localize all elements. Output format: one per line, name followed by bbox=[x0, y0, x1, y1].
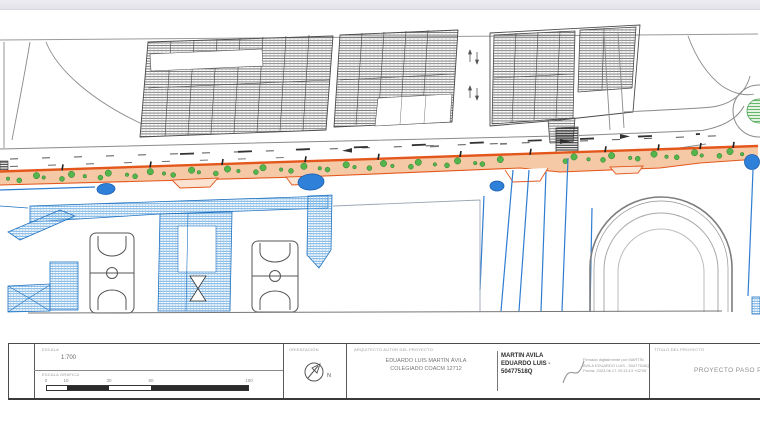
graphic-scale-bar bbox=[46, 385, 249, 391]
blue-building-complex bbox=[0, 195, 332, 312]
city-block-1 bbox=[140, 35, 333, 137]
scale-cell-divider bbox=[34, 370, 283, 371]
city-block-2 bbox=[334, 30, 458, 127]
street-arrow-icons bbox=[469, 50, 479, 100]
tick-100: 100 bbox=[245, 378, 253, 383]
tick-30: 30 bbox=[106, 378, 111, 383]
crossing-ramp bbox=[505, 168, 548, 182]
title-block-divider bbox=[346, 344, 347, 398]
scale-value: 1:700 bbox=[61, 355, 76, 361]
north-letter: N bbox=[327, 373, 331, 379]
city-block-3 bbox=[490, 25, 640, 143]
running-track bbox=[590, 197, 732, 312]
scale-label: ESCALA bbox=[42, 347, 59, 352]
existing-city-blocks bbox=[0, 25, 760, 157]
scale-bar-ticks: 0 10 30 50 100 bbox=[46, 378, 256, 384]
street-curves-left bbox=[4, 42, 142, 148]
road-arrow-icons bbox=[342, 134, 630, 153]
project-title: PROYECTO PASO PEA bbox=[694, 367, 760, 374]
project-area-strip bbox=[0, 142, 758, 188]
architect-name-block: EDUARDO LUIS MARTÍN ÁVILA COLEGIADO COAC… bbox=[361, 357, 491, 374]
north-arrow-icon: N bbox=[301, 357, 341, 389]
tick-10: 10 bbox=[63, 378, 68, 383]
signature-name: MARTIN AVILA EDUARDO LUIS - 50477518Q bbox=[501, 353, 563, 376]
signature-details: Firmado digitalmente por MARTÍN AVILA ED… bbox=[583, 357, 653, 374]
basketball-court-2 bbox=[252, 241, 298, 312]
title-block-divider bbox=[283, 344, 284, 398]
tick-50: 50 bbox=[148, 378, 153, 383]
architect-college: COLEGIADO COACM 12712 bbox=[361, 365, 491, 373]
graphic-scale-label: ESCALA GRAFICA bbox=[42, 372, 79, 377]
architect-name: EDUARDO LUIS MARTÍN ÁVILA bbox=[361, 357, 491, 365]
cad-sheet: { "colors": { "project_strip_orange": "#… bbox=[0, 0, 760, 424]
open-parcel-outline bbox=[333, 200, 480, 312]
project-title-label: TÍTULO DEL PROYECTO bbox=[654, 347, 704, 352]
title-block: ESCALA 1:700 ESCALA GRAFICA 0 10 30 50 1… bbox=[8, 343, 760, 400]
title-block-divider bbox=[34, 344, 35, 398]
architect-label: ARQUITECTO AUTOR DEL PROYECTO bbox=[354, 347, 433, 352]
tick-0: 0 bbox=[45, 378, 48, 383]
basketball-court-1 bbox=[90, 233, 134, 313]
signature-divider bbox=[497, 351, 498, 391]
signature-swoosh-icon bbox=[561, 357, 585, 387]
orientation-label: ORIENTACIÓN bbox=[289, 347, 319, 352]
